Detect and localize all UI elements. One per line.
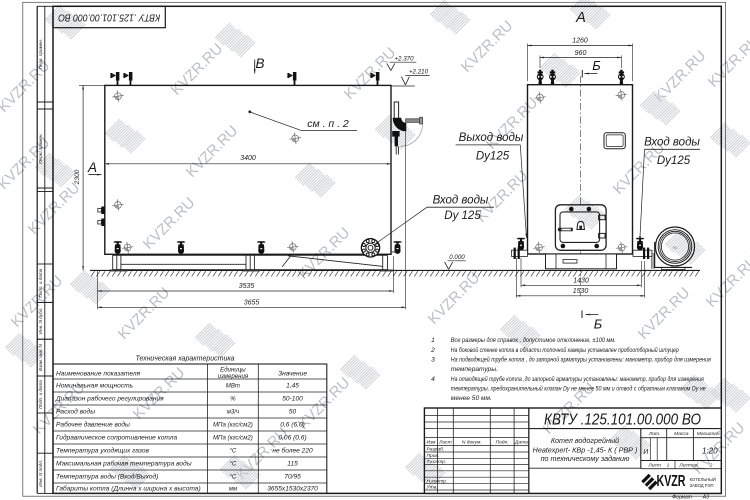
svg-text:Подп.: Подп. <box>496 440 509 446</box>
svg-text:Гидравлическое сопротивление к: Гидравлическое сопротивление котла <box>56 434 177 442</box>
svg-text:2300: 2300 <box>74 169 81 185</box>
svg-text:Масштаб: Масштаб <box>697 431 720 437</box>
svg-text:менее 50 мм.: менее 50 мм. <box>451 395 492 402</box>
svg-text:1: 1 <box>667 463 670 469</box>
svg-text:Формат: Формат <box>672 495 692 500</box>
svg-text:1530: 1530 <box>573 288 589 295</box>
svg-text:Рабочее давление воды: Рабочее давление воды <box>56 421 130 429</box>
svg-text:На подводящей трубе котла ,: На подводящей трубе котла , до запорной … <box>451 356 711 364</box>
svg-text:по техническому заданию: по техническому заданию <box>541 454 630 463</box>
svg-text:измерения: измерения <box>218 373 249 380</box>
svg-text:Лист: Лист <box>647 463 661 469</box>
svg-text:Изм: Изм <box>426 440 436 446</box>
svg-text:Масса: Масса <box>674 431 689 437</box>
svg-text:МПа (кгс/см2): МПа (кгс/см2) <box>213 422 253 429</box>
svg-text:В: В <box>255 56 264 71</box>
svg-text:ЗАВОД РЭП: ЗАВОД РЭП <box>690 483 714 488</box>
svg-text:Б: Б <box>594 317 603 332</box>
svg-text:4: 4 <box>431 376 435 383</box>
svg-text:1: 1 <box>431 337 435 344</box>
svg-text:50: 50 <box>289 409 297 416</box>
svg-text:N докум.: N докум. <box>462 440 482 446</box>
svg-text:Пров.: Пров. <box>427 453 440 459</box>
svg-text:Инв. N подл.: Инв. N подл. <box>38 460 43 487</box>
svg-text:2: 2 <box>430 347 435 354</box>
svg-text:Подп. и дата: Подп. и дата <box>38 380 43 409</box>
svg-text:А3: А3 <box>702 495 709 500</box>
svg-text:На отводящей трубе котла ,до з: На отводящей трубе котла ,до запорной ар… <box>451 375 704 383</box>
svg-text:3: 3 <box>431 357 435 364</box>
svg-text:м3/ч: м3/ч <box>227 409 240 416</box>
svg-text:3535: 3535 <box>239 283 255 290</box>
svg-text:МВт: МВт <box>226 383 240 390</box>
svg-text:Лист: Лист <box>438 440 452 446</box>
svg-text:Техническая характеристика: Техническая характеристика <box>135 356 234 363</box>
svg-text:°С: °С <box>229 448 236 455</box>
svg-text:+2.210: +2.210 <box>409 69 429 76</box>
svg-text:Б: Б <box>592 58 601 73</box>
svg-text:3655: 3655 <box>244 299 260 306</box>
svg-text:70/95: 70/95 <box>284 474 301 481</box>
svg-text:KVZR: KVZR <box>657 473 686 490</box>
svg-text:Значение: Значение <box>278 371 307 378</box>
svg-text:Dy125: Dy125 <box>476 151 510 163</box>
svg-text:3655х1530х2370: 3655х1530х2370 <box>267 485 318 492</box>
svg-text:МПа (кгс/см2): МПа (кгс/см2) <box>213 435 253 442</box>
svg-text:Лит.: Лит. <box>648 431 660 437</box>
svg-text:960: 960 <box>575 50 587 57</box>
svg-text:1430: 1430 <box>573 277 589 284</box>
svg-text:Разраб.: Разраб. <box>427 446 445 452</box>
svg-text:115: 115 <box>287 461 298 468</box>
svg-text:температуры.: температуры. <box>451 366 498 373</box>
svg-text:Габариты котла (Длинна х ширин: Габариты котла (Длинна х ширина х высота… <box>56 484 201 492</box>
svg-text:Все размеры для справок , допу: Все размеры для справок , допустимое отк… <box>451 336 616 344</box>
svg-text:Температура воды (Вход/Выход): Температура воды (Вход/Выход) <box>56 473 158 481</box>
svg-text:1260: 1260 <box>572 38 588 45</box>
svg-text:50-100: 50-100 <box>282 396 303 403</box>
svg-text:см . п . 2: см . п . 2 <box>307 118 349 130</box>
svg-text:Котел водогрейный: Котел водогрейный <box>551 436 619 445</box>
svg-text:Максимальная рабочая температу: Максимальная рабочая температура воды <box>56 460 192 468</box>
svg-text:А: А <box>87 160 97 175</box>
svg-text:Температура уходящих газов: Температура уходящих газов <box>56 447 149 455</box>
svg-text:0.000: 0.000 <box>449 254 465 261</box>
svg-text:Вход воды: Вход воды <box>433 195 489 207</box>
svg-text:%: % <box>230 396 236 403</box>
svg-text:3400: 3400 <box>240 155 256 162</box>
svg-text:КОТЕЛЬНЫЙ: КОТЕЛЬНЫЙ <box>690 477 716 482</box>
svg-text:Наименование показателя: Наименование показателя <box>56 371 141 378</box>
svg-text:Дата: Дата <box>514 440 528 446</box>
svg-text:мм: мм <box>229 485 238 492</box>
svg-text:На боковой стенке котла в обла: На боковой стенке котла в области топочн… <box>451 346 679 354</box>
svg-text:1,45: 1,45 <box>286 383 299 390</box>
